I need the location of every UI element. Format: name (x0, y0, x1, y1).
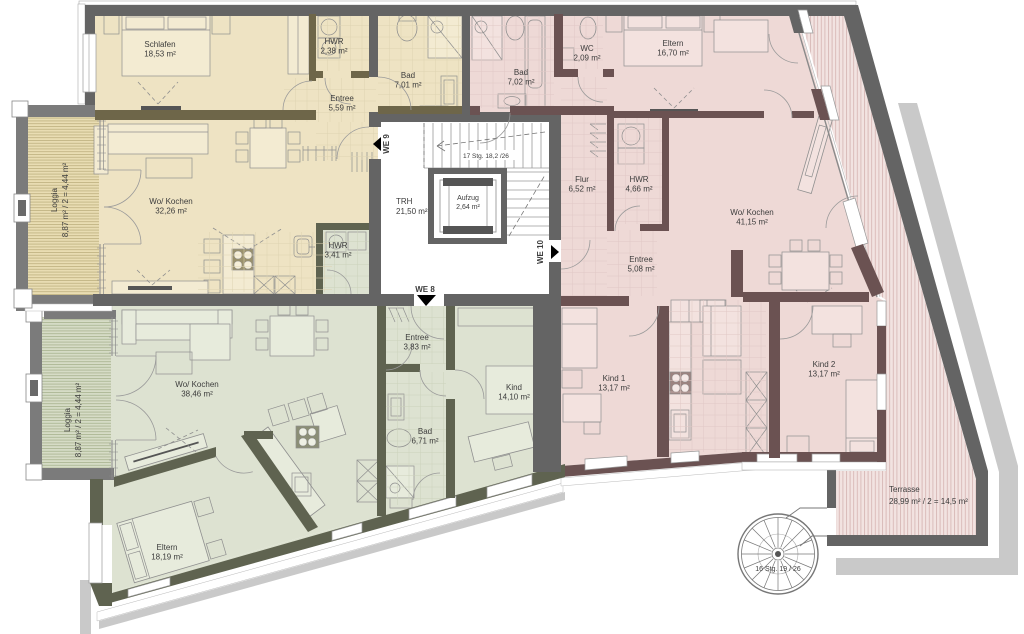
svg-text:2,09 m²: 2,09 m² (573, 54, 600, 63)
svg-text:7,01 m²: 7,01 m² (394, 81, 421, 90)
svg-text:13,17 m²: 13,17 m² (808, 370, 840, 379)
svg-text:WC: WC (580, 44, 594, 53)
svg-text:Entree: Entree (629, 255, 653, 264)
svg-text:Eltern: Eltern (663, 39, 684, 48)
svg-text:38,46 m²: 38,46 m² (181, 390, 213, 399)
svg-text:Loggia: Loggia (63, 407, 72, 432)
svg-text:Wo/ Kochen: Wo/ Kochen (149, 197, 192, 206)
svg-text:HWR: HWR (328, 241, 347, 250)
svg-text:Schlafen: Schlafen (144, 40, 175, 49)
svg-text:41,15 m²: 41,15 m² (736, 218, 768, 227)
svg-text:5,59 m²: 5,59 m² (328, 104, 355, 113)
svg-text:HWR: HWR (324, 37, 343, 46)
svg-text:WE 9: WE 9 (382, 134, 391, 154)
svg-text:5,08 m²: 5,08 m² (627, 265, 654, 274)
svg-text:Aufzug: Aufzug (457, 195, 479, 202)
svg-text:Flur: Flur (575, 175, 589, 184)
svg-text:Bad: Bad (418, 427, 432, 436)
svg-text:Kind 1: Kind 1 (603, 374, 626, 383)
svg-text:WE 10: WE 10 (536, 239, 545, 264)
svg-text:Loggia: Loggia (50, 187, 59, 212)
svg-text:Eltern: Eltern (157, 543, 178, 552)
svg-text:7,02 m²: 7,02 m² (507, 78, 534, 87)
svg-text:4,66 m²: 4,66 m² (625, 185, 652, 194)
svg-text:17 Stg. 18,2 /26: 17 Stg. 18,2 /26 (463, 153, 509, 160)
svg-text:3,41 m²: 3,41 m² (324, 251, 351, 260)
svg-text:WE 8: WE 8 (415, 285, 435, 294)
svg-text:8,87 m² / 2 = 4,44 m²: 8,87 m² / 2 = 4,44 m² (74, 382, 83, 457)
svg-text:2,64 m²: 2,64 m² (456, 204, 480, 211)
svg-text:Terrasse: Terrasse (889, 485, 920, 494)
svg-text:Bad: Bad (514, 68, 528, 77)
svg-text:2,38 m²: 2,38 m² (320, 47, 347, 56)
svg-text:6,52 m²: 6,52 m² (568, 185, 595, 194)
svg-text:16 Stg. 19 / 26: 16 Stg. 19 / 26 (755, 566, 801, 573)
svg-text:TRH: TRH (396, 197, 413, 206)
svg-text:13,17 m²: 13,17 m² (598, 384, 630, 393)
svg-text:Bad: Bad (401, 71, 415, 80)
svg-text:18,53 m²: 18,53 m² (144, 50, 176, 59)
svg-text:18,19 m²: 18,19 m² (151, 553, 183, 562)
svg-text:Kind 2: Kind 2 (813, 360, 836, 369)
svg-text:32,26 m²: 32,26 m² (155, 207, 187, 216)
svg-text:21,50 m²: 21,50 m² (396, 207, 428, 216)
svg-text:14,10 m²: 14,10 m² (498, 393, 530, 402)
svg-text:Kind: Kind (506, 383, 522, 392)
svg-text:Wo/ Kochen: Wo/ Kochen (730, 208, 773, 217)
svg-text:Wo/ Kochen: Wo/ Kochen (175, 380, 218, 389)
svg-text:Entree: Entree (330, 94, 354, 103)
svg-text:3,83 m²: 3,83 m² (403, 343, 430, 352)
svg-text:28,99 m² / 2 = 14,5 m²: 28,99 m² / 2 = 14,5 m² (889, 497, 968, 506)
svg-text:HWR: HWR (629, 175, 648, 184)
svg-text:6,71 m²: 6,71 m² (411, 437, 438, 446)
svg-text:Entree: Entree (405, 333, 429, 342)
svg-text:8,87 m² / 2 = 4,44 m²: 8,87 m² / 2 = 4,44 m² (61, 162, 70, 237)
svg-text:16,70 m²: 16,70 m² (657, 49, 689, 58)
